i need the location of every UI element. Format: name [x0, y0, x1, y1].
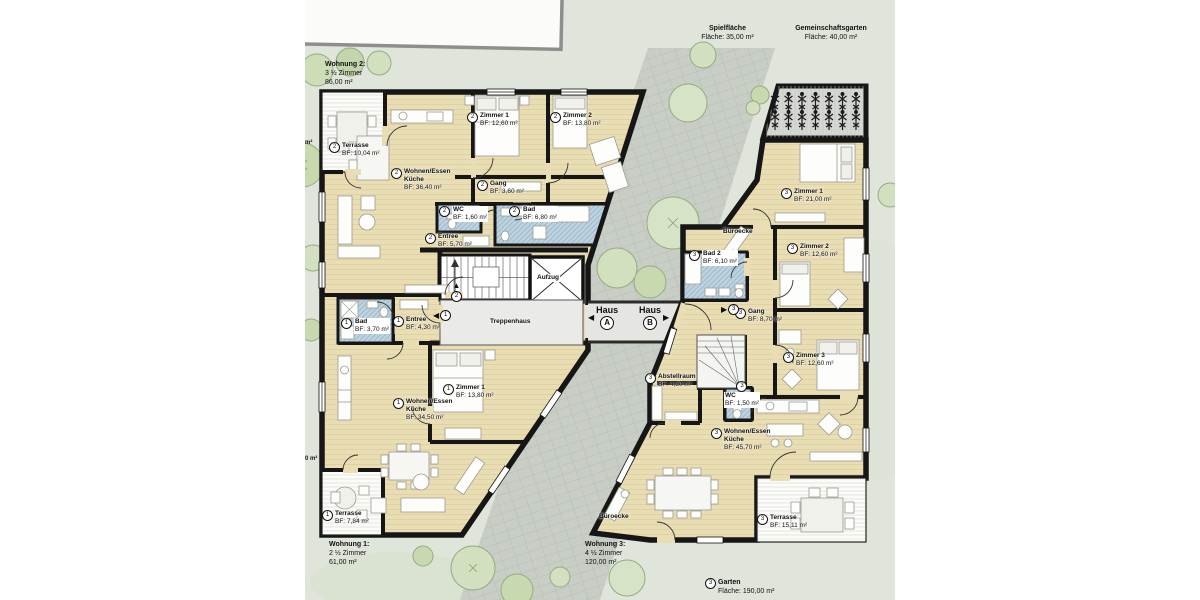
room-label-bad-2: 3Bad 2BF: 6,10 m² — [689, 250, 738, 266]
apartment-number-badge: 3 — [787, 243, 798, 254]
apartment-number-badge: 1 — [322, 510, 333, 521]
direction-arrow-icon: ▲ — [453, 282, 461, 290]
room-label-terrasse: 3TerrasseBF: 15,11 m² — [757, 514, 807, 530]
apartment-number-badge: 3 — [711, 428, 722, 439]
room-label-bad: 2BadBF: 6,80 m² — [509, 206, 558, 222]
garten-label: 3 Garten Fläche: 190,00 m² — [705, 578, 774, 596]
apartment-number-badge: 2 — [509, 206, 520, 217]
room-label-gang: 3GangBF: 8,70 m² — [735, 308, 782, 324]
apartment-number-badge: 3 — [645, 373, 656, 384]
room-label-wohnen-essen: 2Wohnen/EssenKücheBF: 36,40 m² — [391, 168, 450, 192]
haus-b-label: Haus B ▶ — [639, 306, 669, 330]
arrow-right-icon: ▶ — [663, 314, 669, 322]
room-label-büroecke: Büroecke — [723, 228, 753, 236]
apartment-number-badge: 3 — [736, 381, 747, 392]
entrance-marker-1: ◀1 — [433, 310, 451, 321]
apartment-number-badge: 3 — [705, 578, 716, 589]
edge-text-fragment: m² — [305, 140, 312, 146]
room-label-gang: 2GangBF: 3,60 m² — [477, 180, 524, 196]
apartment-number-badge: 2 — [329, 142, 340, 153]
apartment-number-badge: 3 — [728, 304, 739, 315]
apartment-number-badge: 2 — [467, 112, 478, 123]
apartment-number-badge: 1 — [393, 316, 404, 327]
room-label-zimmer-3: 3Zimmer 3BF: 12,60 m² — [783, 352, 834, 368]
plan-labels-layer: Spielfläche Fläche: 35,00 m² Gemeinschaf… — [305, 0, 895, 600]
room-label-wohnen-essen: 3Wohnen/EssenKücheBF: 45,70 m² — [711, 428, 770, 452]
room-label-zimmer-2: 3Zimmer 2BF: 12,60 m² — [787, 243, 838, 259]
room-label-entree: 2EntreeBF: 5,70 m² — [425, 233, 472, 249]
haus-a-badge: A — [600, 316, 614, 330]
apartment-number-badge: 3 — [757, 514, 768, 525]
apartment-number-badge: 3 — [783, 352, 794, 363]
apartment-number-badge: 2 — [477, 180, 488, 191]
apartment-2-title: Wohnung 2: 3 ½ Zimmer 86,00 m² — [325, 60, 365, 87]
apartment-number-badge: 2 — [439, 206, 450, 217]
apartment-3-title: Wohnung 3: 4 ½ Zimmer 120,00 m² — [585, 540, 625, 567]
apartment-number-badge: 1 — [443, 384, 454, 395]
direction-arrow-icon: ▶ — [721, 306, 727, 314]
apartment-number-badge: 1 — [440, 310, 451, 321]
room-label-wc: 3WCBF: 1,50 m² — [724, 381, 760, 408]
room-label-abstellraum: 3AbstellraumBF: 4,30 m² — [645, 373, 696, 389]
floor-plan-area: Spielfläche Fläche: 35,00 m² Gemeinschaf… — [305, 0, 895, 600]
haus-b-badge: B — [643, 316, 657, 330]
site-plan-page: Spielfläche Fläche: 35,00 m² Gemeinschaf… — [0, 0, 1200, 600]
room-label-büroecke: Büroecke — [599, 513, 629, 521]
room-label-zimmer-1: 3Zimmer 1BF: 21,00 m² — [781, 188, 832, 204]
entrance-marker-2: ▲2 — [451, 282, 462, 302]
apartment-number-badge: 3 — [689, 250, 700, 261]
gemeinschaftsgarten-label: Gemeinschaftsgarten Fläche: 40,00 m² — [767, 24, 895, 42]
entrance-marker-3: ▶3 — [721, 304, 739, 315]
room-label-treppenhaus: Treppenhaus — [490, 318, 530, 326]
room-label-wc: 2WCBF: 1,60 m² — [439, 206, 488, 222]
haus-a-label: ◀ Haus A — [588, 306, 618, 330]
room-label-aufzug: Aufzug — [536, 274, 560, 282]
apartment-1-title: Wohnung 1: 2 ½ Zimmer 61,00 m² — [329, 540, 369, 567]
apartment-number-badge: 2 — [391, 168, 402, 179]
apartment-number-badge: 3 — [781, 188, 792, 199]
arrow-left-icon: ◀ — [588, 314, 594, 322]
apartment-number-badge: 2 — [425, 233, 436, 244]
apartment-number-badge: 1 — [341, 318, 352, 329]
room-label-terrasse: 1TerrasseBF: 7,84 m² — [322, 510, 369, 526]
room-label-zimmer-1: 2Zimmer 1BF: 12,60 m² — [467, 112, 518, 128]
apartment-number-badge: 2 — [451, 291, 462, 302]
room-label-terrasse: 2TerrasseBF: 10,04 m² — [329, 142, 380, 158]
edge-text-fragment: 0 m² — [305, 456, 317, 462]
room-label-bad: 1BadBF: 3,70 m² — [341, 318, 390, 334]
room-label-wohnen-essen: 1Wohnen/EssenKücheBF: 34,50 m² — [393, 398, 452, 422]
apartment-number-badge: 2 — [550, 112, 561, 123]
room-label-zimmer-2: 2Zimmer 2BF: 13,80 m² — [550, 112, 601, 128]
apartment-number-badge: 1 — [393, 398, 404, 409]
direction-arrow-icon: ◀ — [433, 312, 439, 320]
